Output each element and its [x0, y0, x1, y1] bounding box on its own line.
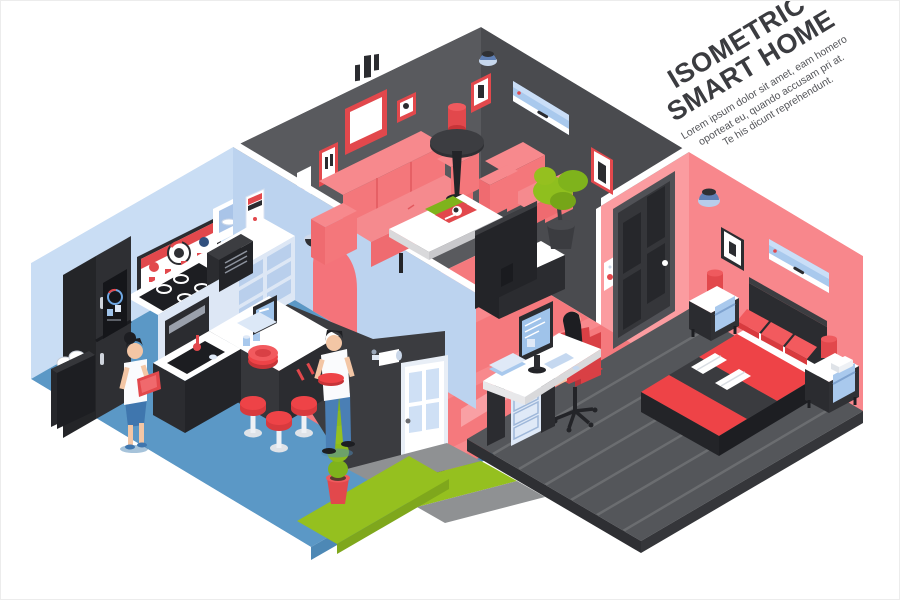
plate-stack [248, 345, 278, 369]
table-lamp [448, 103, 466, 133]
mouse [573, 366, 580, 370]
smart-home-poster: ISOMETRIC SMART HOME Lorem ipsum dolor s… [0, 0, 900, 600]
smart-home-illustration [1, 1, 900, 600]
